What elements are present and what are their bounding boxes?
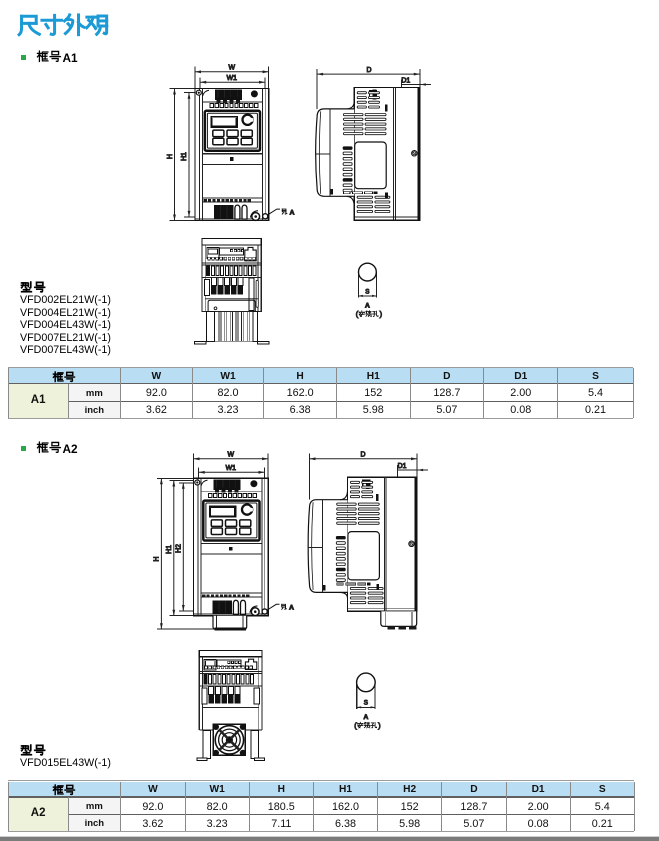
svg-text:D: D xyxy=(367,67,372,74)
svg-text:H: H xyxy=(154,556,161,561)
svg-text:): ) xyxy=(380,310,382,319)
svg-text:D: D xyxy=(361,452,366,459)
svg-text:S: S xyxy=(365,288,369,295)
svg-text:D1: D1 xyxy=(398,463,407,470)
svg-text:A: A xyxy=(289,605,294,612)
svg-text:W: W xyxy=(229,65,236,72)
svg-text:H: H xyxy=(167,154,174,159)
svg-text:): ) xyxy=(378,721,380,730)
svg-text:(: ( xyxy=(356,310,359,319)
svg-text:W1: W1 xyxy=(226,465,237,472)
svg-text:A: A xyxy=(365,303,370,310)
svg-text:S: S xyxy=(364,700,368,707)
svg-text:D1: D1 xyxy=(401,77,410,84)
svg-text:(: ( xyxy=(354,721,357,730)
svg-text:W: W xyxy=(228,452,235,459)
svg-text:H1: H1 xyxy=(181,152,188,161)
svg-text:A: A xyxy=(290,209,295,216)
svg-text:H2: H2 xyxy=(176,544,183,553)
svg-text:H1: H1 xyxy=(166,545,173,554)
svg-text:A: A xyxy=(364,714,369,721)
svg-text:W1: W1 xyxy=(227,75,238,82)
